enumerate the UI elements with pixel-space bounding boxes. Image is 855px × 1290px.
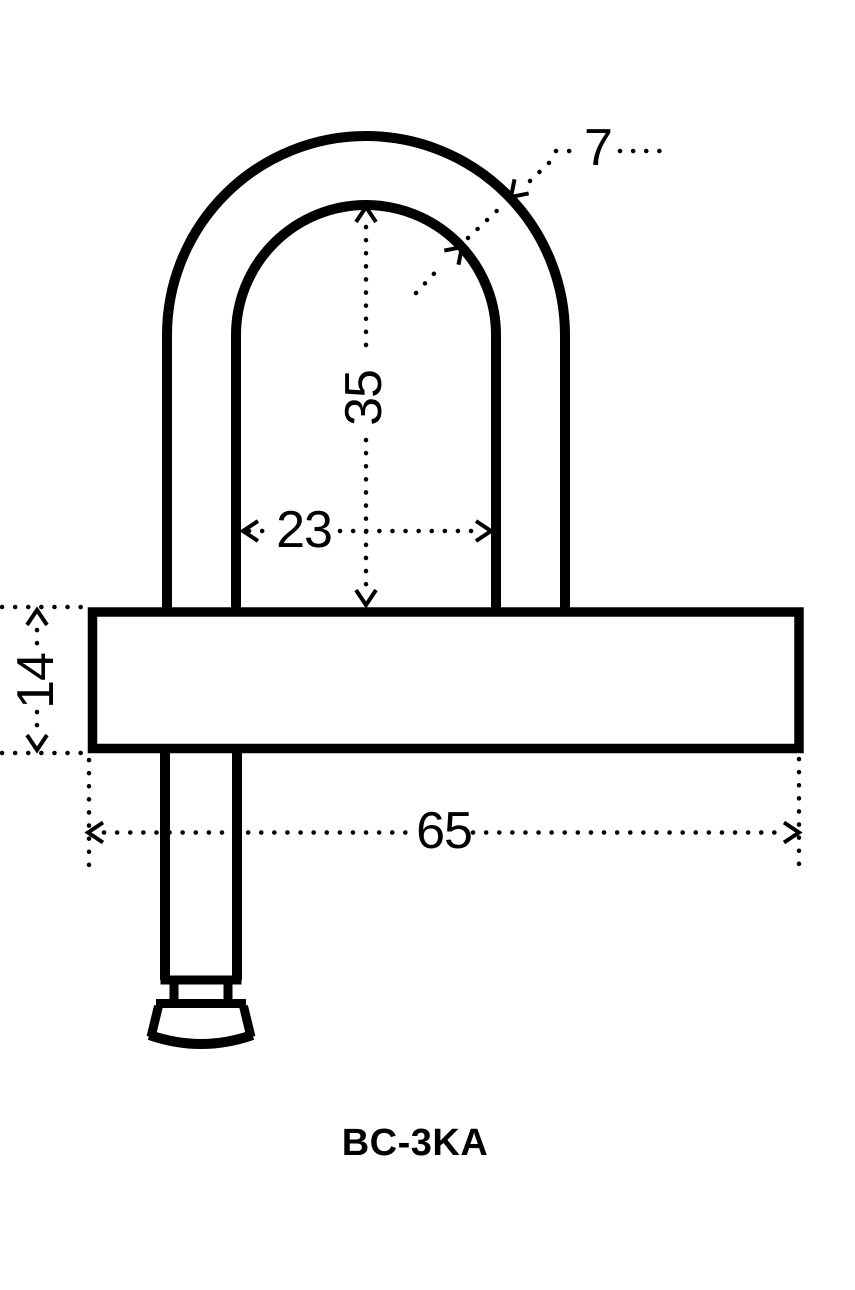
leader-dots-outer-tail [530, 159, 553, 181]
foot-bottom-arc [150, 1035, 253, 1044]
arrow-up [27, 610, 47, 625]
lock-body [93, 612, 800, 749]
drawing-canvas: 7 35 23 14 65 BC-3KA [0, 0, 855, 1290]
leader-dots-across-rod [468, 205, 503, 238]
dimension-shackle-diameter [416, 151, 661, 293]
product-code-title: BC-3KA [342, 1122, 489, 1164]
dimension-lines [2, 151, 799, 868]
dim-inner-height-label: 35 [335, 370, 393, 426]
dim-shackle-diameter-label: 7 [584, 119, 612, 177]
dimension-labels: 7 35 23 14 65 BC-3KA [7, 119, 612, 1164]
dim-body-height-label: 14 [7, 653, 65, 709]
arrow-down [27, 735, 47, 750]
arrow-down [356, 590, 376, 605]
dim-inner-width-label: 23 [276, 501, 332, 559]
lock-outline [93, 136, 800, 1044]
leader-dots-inner-tail [416, 265, 442, 293]
arrow-right [784, 823, 799, 843]
technical-drawing: 7 35 23 14 65 BC-3KA [0, 0, 855, 1290]
dim-body-width-label: 65 [416, 802, 472, 860]
bolt-pin [150, 753, 253, 1044]
arrow-right [476, 521, 491, 541]
